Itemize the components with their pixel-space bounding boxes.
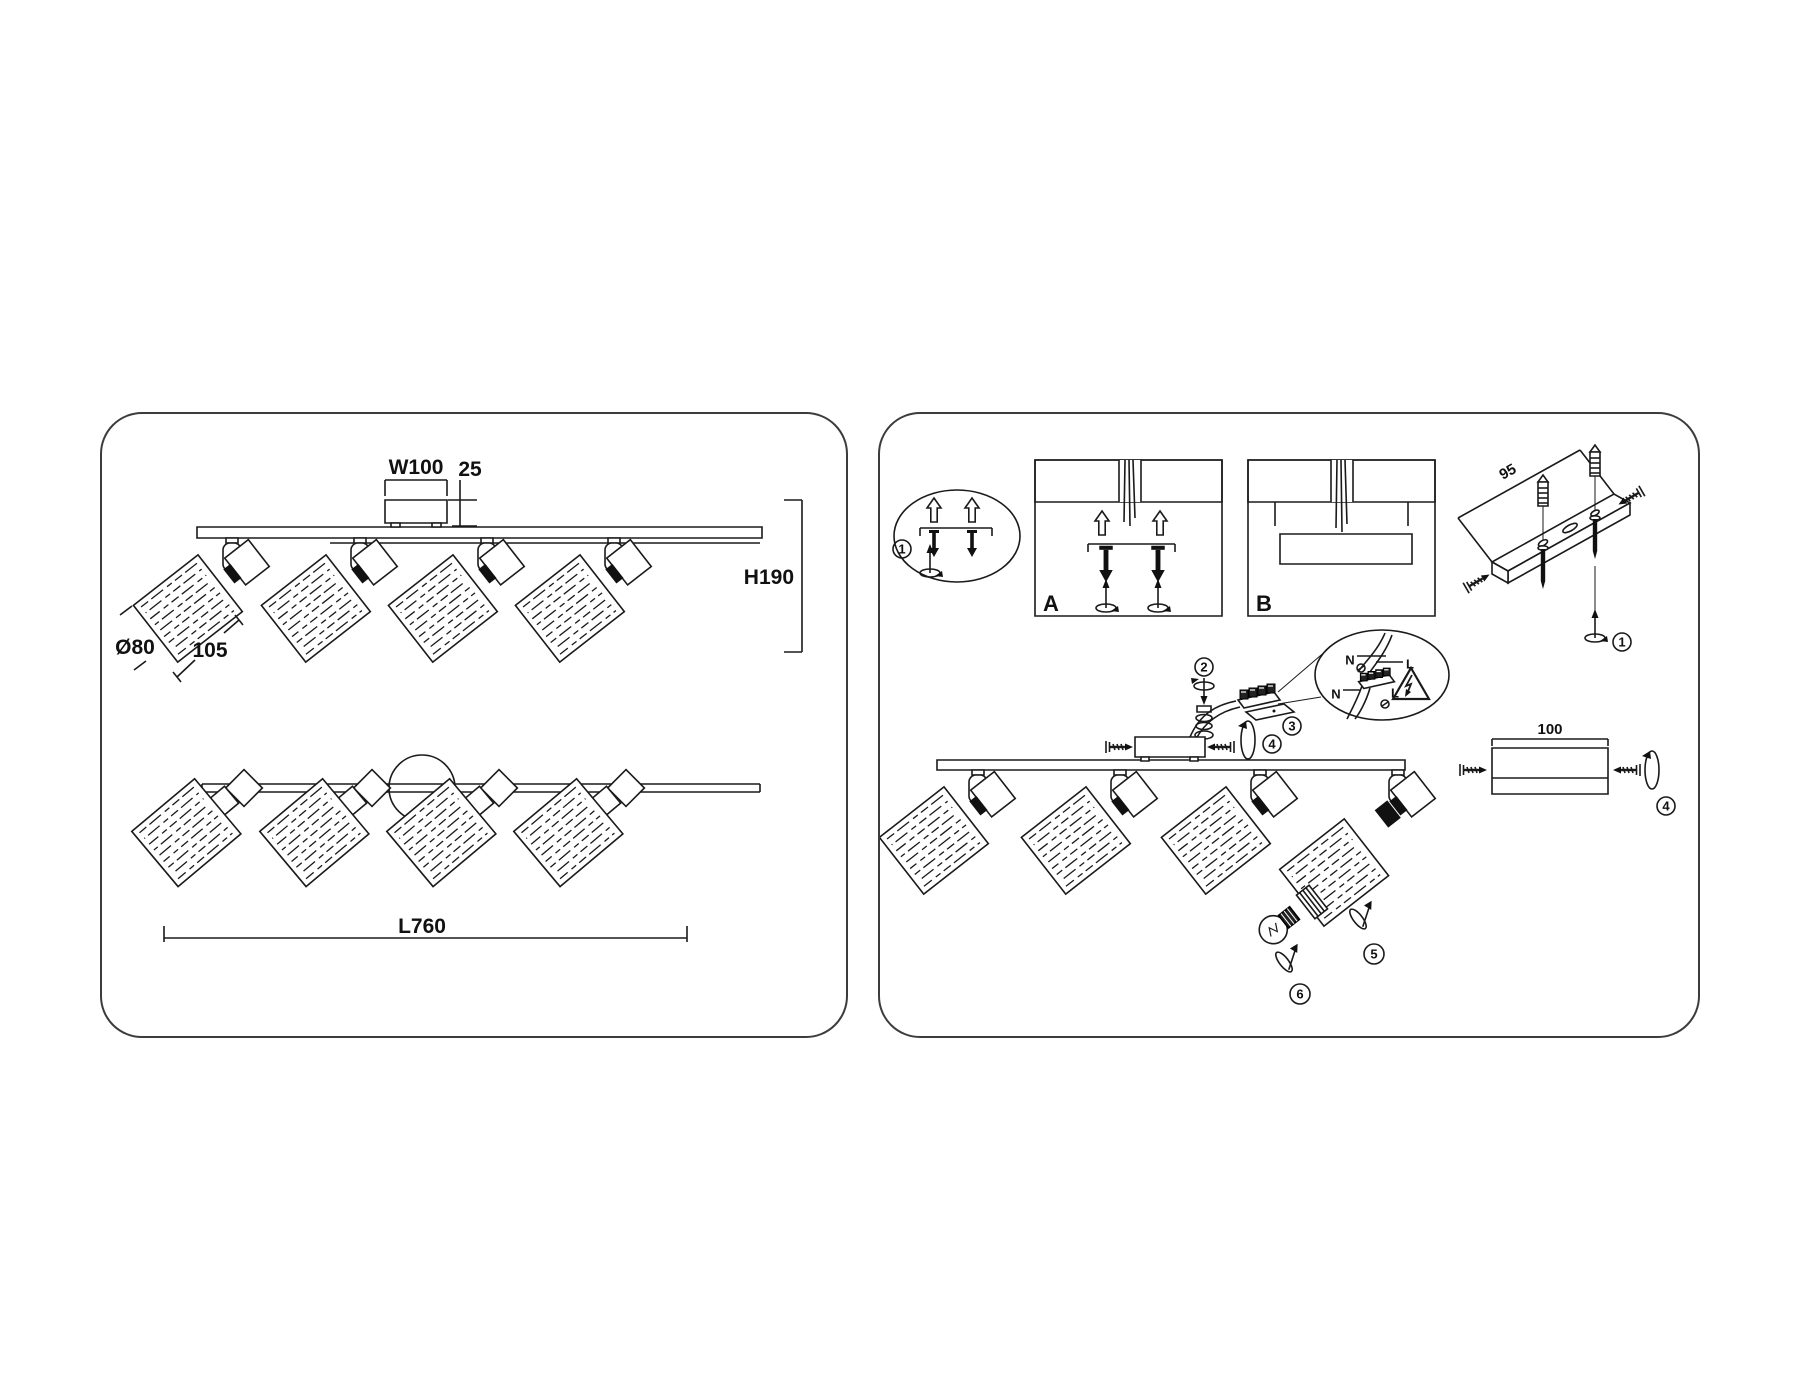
wall-plug-icon (927, 498, 941, 522)
rotate-icon (1238, 721, 1255, 759)
mount-option-b: B (1248, 460, 1435, 616)
bottom-view: L760 (132, 755, 760, 942)
step-2-number: 2 (1200, 660, 1207, 675)
dim-canopy-width: W100 (385, 456, 447, 496)
step-4-number: 4 (1268, 737, 1276, 752)
dim-100-label: 100 (1537, 721, 1562, 738)
installation-drawing: 1 A (880, 414, 1702, 1040)
step-4-number: 4 (1662, 799, 1670, 814)
neutral-label: N (1331, 687, 1340, 702)
spot-lamp-2 (1021, 757, 1169, 894)
wall-plug-icon (1538, 475, 1548, 506)
bulb-group: 6 (1254, 902, 1310, 1004)
wire (1358, 633, 1385, 672)
rotate-icon (1191, 678, 1214, 705)
dim-w100-label: W100 (389, 456, 444, 479)
neutral-label: N (1345, 653, 1354, 668)
dim-l760-label: L760 (398, 915, 446, 938)
dimensions-panel: W100 25 Ø80 (100, 412, 848, 1038)
step-5-number: 5 (1370, 947, 1377, 962)
step-3-number: 3 (1288, 719, 1295, 734)
canopy-screw-icon (1106, 741, 1133, 753)
dim-canopy-height: 25 (448, 458, 482, 526)
dim-fixture-height: H190 (744, 500, 802, 652)
track-bar (937, 760, 1405, 770)
dim-105-label: 105 (192, 639, 227, 662)
dim-fixture-length: L760 (164, 915, 687, 942)
nut (1197, 706, 1211, 712)
dimensions-drawing: W100 25 Ø80 (102, 414, 850, 1040)
step1-oval: 1 (893, 490, 1020, 582)
rotate-icon (1585, 609, 1608, 642)
step-1-number: 1 (898, 542, 905, 557)
canopy-screw-icon (1207, 741, 1234, 753)
rotate-icon (920, 544, 943, 577)
side-view: W100 25 Ø80 (115, 456, 802, 682)
side-screw-icon (1613, 764, 1640, 776)
canopy-profile-group: 100 4 (1460, 721, 1675, 815)
track-bar (197, 527, 762, 538)
rotate-icon (1273, 939, 1309, 974)
option-b-label: B (1256, 591, 1272, 616)
dim-d80-label: Ø80 (115, 636, 155, 659)
wall-plug-icon (1590, 445, 1600, 476)
detached-shade (1280, 819, 1389, 926)
spot-lamp-2 (261, 525, 409, 662)
terminal-group: 3 (1190, 650, 1327, 739)
mounting-bar (1280, 534, 1412, 564)
wiring-callout: N L N L (1315, 630, 1449, 720)
installation-panel: 1 A (878, 412, 1700, 1038)
option-a-label: A (1043, 591, 1059, 616)
spot-below-1 (132, 767, 263, 886)
step-6-number: 6 (1296, 987, 1303, 1002)
mount-option-a: A (1035, 460, 1222, 616)
dim-25-label: 25 (458, 458, 482, 481)
fixture-assembly: 4 (880, 721, 1435, 1004)
side-screw-icon (1463, 569, 1492, 593)
step-1-number: 1 (1618, 635, 1625, 650)
dim-95-label: 95 (1496, 461, 1519, 484)
canopy (1135, 737, 1205, 761)
side-screw-icon (1460, 764, 1487, 776)
screw-icon (967, 530, 977, 557)
rotate-icon (1642, 751, 1659, 789)
spot-lamp-3 (388, 525, 536, 662)
instruction-sheet: { "left_panel": { "dims": { "canopy_widt… (0, 0, 1800, 1400)
spot-lamp-4-exploded: 5 (1280, 770, 1436, 964)
wire (1336, 460, 1337, 528)
spot-below-2 (260, 767, 391, 886)
canopy-profile (1492, 748, 1608, 794)
terminal-block (1238, 684, 1280, 708)
wire (1124, 460, 1125, 522)
spot-lamp-1 (880, 757, 1027, 894)
wall-plug-icon (965, 498, 979, 522)
bracket-3d: 95 1 (1458, 445, 1645, 651)
spot-lamp-4 (515, 525, 663, 662)
spot-below-3 (387, 767, 518, 886)
spot-below-4 (514, 767, 645, 886)
dim-h190-label: H190 (744, 566, 794, 589)
canopy (385, 500, 447, 527)
